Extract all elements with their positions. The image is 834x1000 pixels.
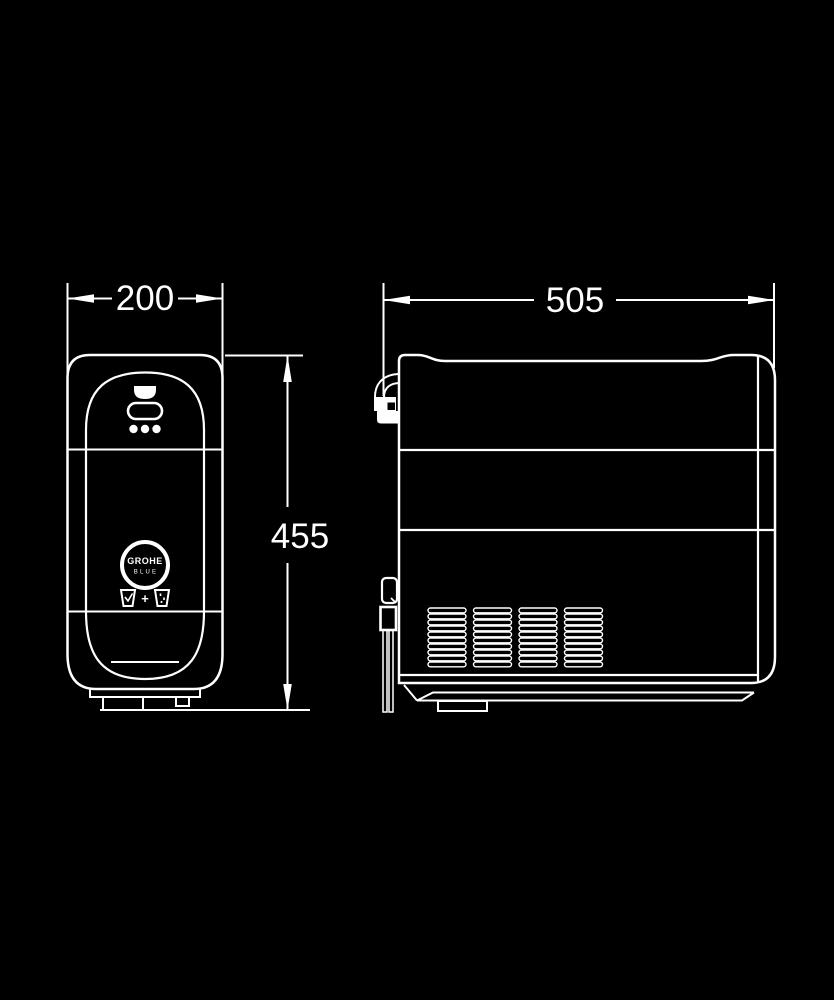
led-dot-icon (129, 425, 137, 433)
front-outline (68, 355, 223, 689)
water-tubes-icon (381, 578, 398, 712)
side-outline (399, 355, 775, 683)
vent-slat (565, 662, 603, 667)
dimension-label-front-height: 455 (271, 517, 329, 556)
dimension-label-side-depth: 505 (546, 281, 604, 320)
logo-text-grohe: GROHE (127, 556, 163, 566)
vent-slat (428, 632, 466, 637)
arrowhead-icon (384, 296, 411, 305)
valve-body (382, 578, 397, 603)
vent-slat (565, 638, 603, 643)
vent-slat (519, 638, 557, 643)
led-dot-icon (141, 425, 149, 433)
technical-drawing-page: 200 505 455 (0, 0, 834, 1000)
spout-outlet-icon (134, 386, 156, 399)
glass-bubbles-mark (161, 594, 165, 604)
vent-slat (565, 608, 603, 613)
vent-slat (519, 632, 557, 637)
vent-slat (474, 632, 512, 637)
glass-icon (155, 590, 169, 606)
vent-slat (519, 614, 557, 619)
vent-slat (428, 614, 466, 619)
vent-slat (519, 650, 557, 655)
vent-slat (474, 614, 512, 619)
valve-notch (391, 598, 396, 603)
dimension-label-front-width: 200 (116, 279, 174, 318)
front-panel-bottom-u (86, 612, 204, 680)
vent-slat (428, 656, 466, 661)
vent-slat (428, 638, 466, 643)
vent-slat (565, 650, 603, 655)
technical-drawing: 200 505 455 (0, 0, 834, 1000)
hose-fitting-lower (377, 411, 399, 424)
vent-slat (565, 626, 603, 631)
tube (383, 630, 387, 712)
vent-slat (519, 662, 557, 667)
arrowhead-icon (283, 684, 292, 710)
vent-slat (565, 644, 603, 649)
vent-slat (474, 656, 512, 661)
vent-slat (474, 638, 512, 643)
vent-slat (474, 626, 512, 631)
hose-curve (375, 374, 400, 397)
arrowhead-icon (283, 356, 292, 383)
vent-slat (519, 608, 557, 613)
vent-slat (474, 608, 512, 613)
arrowhead-icon (68, 294, 95, 303)
vent-slat (428, 644, 466, 649)
side-foot (438, 701, 487, 711)
vent-slat (474, 650, 512, 655)
display-pill-icon (128, 403, 162, 419)
vent-slat (428, 626, 466, 631)
vent-slat (565, 620, 603, 625)
vent-slat (474, 644, 512, 649)
ventilation-grille-icon (428, 608, 603, 667)
water-hose-connector-icon (374, 374, 400, 424)
side-view (399, 355, 775, 711)
control-panel (128, 386, 162, 433)
glass-icon (121, 590, 135, 606)
side-base-strip (404, 685, 754, 701)
vent-slat (519, 656, 557, 661)
led-dot-icon (152, 425, 160, 433)
tube (389, 630, 393, 712)
vent-slat (565, 614, 603, 619)
vent-slat (428, 662, 466, 667)
vent-slat (565, 632, 603, 637)
logo-text-blue: BLUE (134, 570, 158, 576)
hose-fitting-notch (388, 403, 396, 411)
arrowhead-icon (748, 296, 774, 305)
front-panel-dome (86, 373, 204, 450)
valve-block (381, 607, 397, 630)
grohe-blue-logo: GROHE BLUE (122, 542, 168, 588)
front-view (68, 355, 223, 710)
vent-slat (565, 656, 603, 661)
vent-slat (474, 662, 512, 667)
glass-sparkle-mark (125, 594, 133, 602)
led-dots-icon (129, 425, 160, 433)
vent-slat (519, 620, 557, 625)
vent-slat (428, 620, 466, 625)
vent-slat (519, 626, 557, 631)
plus-sign: + (141, 591, 149, 606)
vent-slat (519, 644, 557, 649)
arrowhead-icon (196, 294, 223, 303)
front-foot (103, 697, 143, 710)
front-foot (176, 697, 189, 706)
vent-slat (428, 650, 466, 655)
vent-slat (428, 608, 466, 613)
vent-slat (474, 620, 512, 625)
